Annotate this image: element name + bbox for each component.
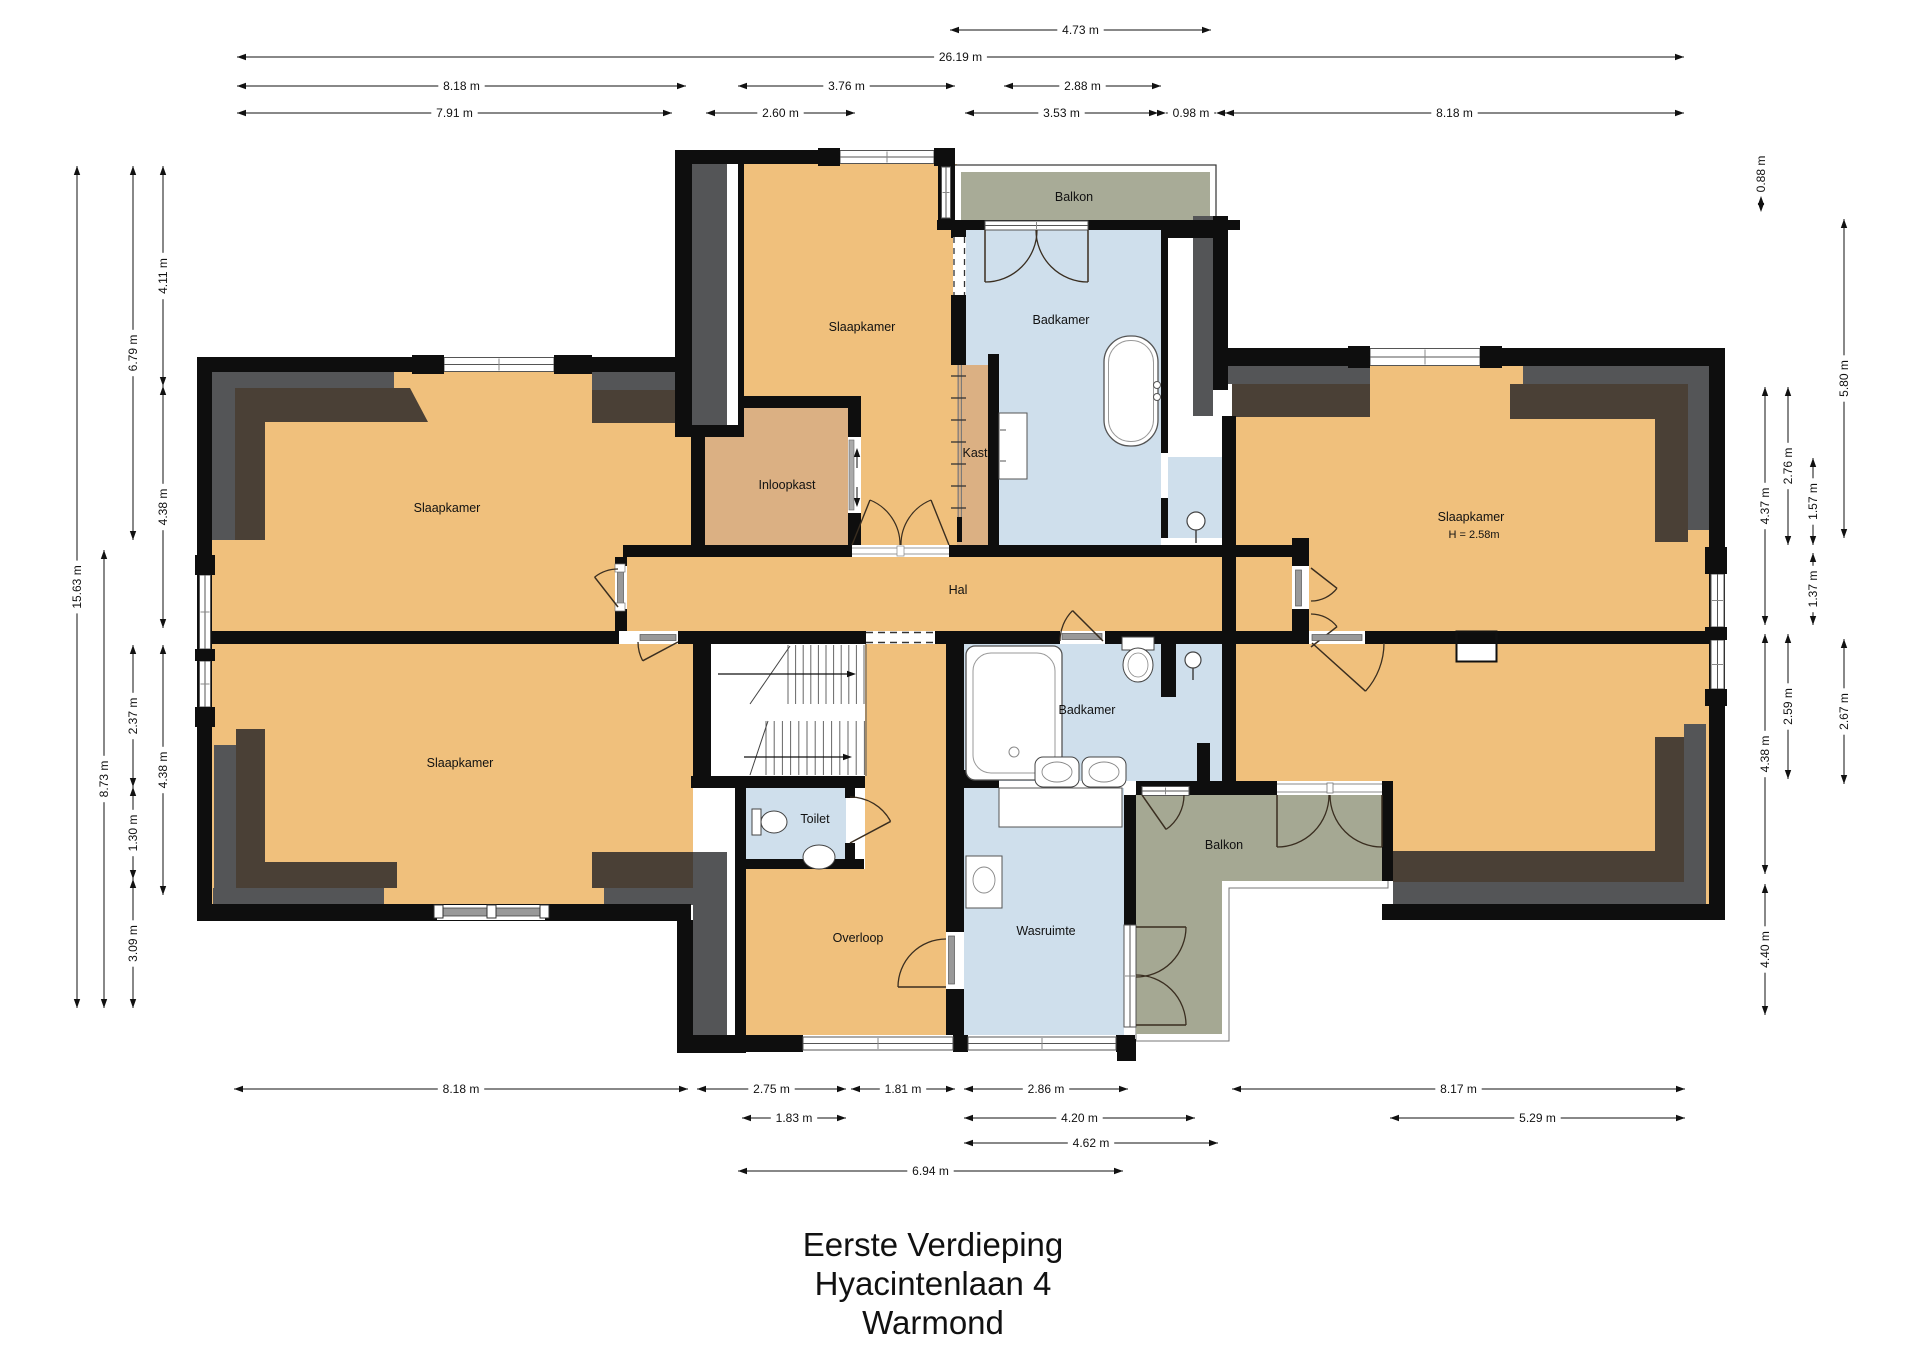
- svg-text:1.81 m: 1.81 m: [885, 1082, 922, 1096]
- svg-text:2.88 m: 2.88 m: [1064, 79, 1101, 93]
- svg-text:4.62 m: 4.62 m: [1073, 1136, 1110, 1150]
- svg-text:0.88 m: 0.88 m: [1754, 156, 1768, 193]
- svg-text:2.76 m: 2.76 m: [1781, 448, 1795, 485]
- svg-text:4.38 m: 4.38 m: [156, 489, 170, 526]
- svg-text:Warmond: Warmond: [862, 1304, 1004, 1341]
- svg-text:4.20 m: 4.20 m: [1061, 1111, 1098, 1125]
- svg-text:3.09 m: 3.09 m: [126, 925, 140, 962]
- svg-text:4.11 m: 4.11 m: [156, 258, 170, 294]
- svg-text:Slaapkamer: Slaapkamer: [829, 320, 896, 334]
- svg-text:Balkon: Balkon: [1055, 190, 1093, 204]
- svg-text:8.18 m: 8.18 m: [1436, 106, 1473, 120]
- svg-text:H = 2.58m: H = 2.58m: [1448, 529, 1499, 541]
- svg-text:Kast: Kast: [962, 446, 988, 460]
- svg-text:2.60 m: 2.60 m: [762, 106, 799, 120]
- svg-text:Eerste Verdieping: Eerste Verdieping: [803, 1226, 1064, 1263]
- svg-text:26.19 m: 26.19 m: [939, 50, 982, 64]
- svg-text:2.67 m: 2.67 m: [1837, 693, 1851, 730]
- svg-text:Balkon: Balkon: [1205, 838, 1243, 852]
- svg-text:Badkamer: Badkamer: [1059, 703, 1116, 717]
- svg-text:8.18 m: 8.18 m: [443, 79, 480, 93]
- svg-text:4.38 m: 4.38 m: [156, 752, 170, 789]
- svg-text:1.83 m: 1.83 m: [776, 1111, 813, 1125]
- svg-text:5.29 m: 5.29 m: [1519, 1111, 1556, 1125]
- svg-text:Overloop: Overloop: [833, 931, 884, 945]
- svg-text:1.57 m: 1.57 m: [1806, 483, 1820, 520]
- svg-text:1.37 m: 1.37 m: [1806, 571, 1820, 608]
- svg-text:8.73 m: 8.73 m: [97, 761, 111, 798]
- svg-text:3.76 m: 3.76 m: [828, 79, 865, 93]
- svg-text:15.63 m: 15.63 m: [70, 565, 84, 608]
- svg-text:0.98 m: 0.98 m: [1173, 106, 1210, 120]
- svg-text:Slaapkamer: Slaapkamer: [414, 501, 481, 515]
- svg-text:6.79 m: 6.79 m: [126, 335, 140, 372]
- svg-text:2.59 m: 2.59 m: [1781, 688, 1795, 725]
- svg-text:4.38 m: 4.38 m: [1758, 736, 1772, 773]
- svg-text:7.91 m: 7.91 m: [436, 106, 473, 120]
- svg-text:2.37 m: 2.37 m: [126, 698, 140, 735]
- svg-text:1.30 m: 1.30 m: [126, 815, 140, 852]
- svg-text:8.17 m: 8.17 m: [1440, 1082, 1477, 1096]
- svg-text:2.75 m: 2.75 m: [753, 1082, 790, 1096]
- svg-text:Toilet: Toilet: [800, 812, 830, 826]
- svg-text:Hyacintenlaan 4: Hyacintenlaan 4: [815, 1265, 1052, 1302]
- svg-text:5.80 m: 5.80 m: [1837, 360, 1851, 397]
- svg-text:Wasruimte: Wasruimte: [1016, 924, 1075, 938]
- svg-text:Hal: Hal: [949, 583, 968, 597]
- svg-text:Badkamer: Badkamer: [1033, 313, 1090, 327]
- svg-text:Slaapkamer: Slaapkamer: [427, 756, 494, 770]
- svg-text:4.37 m: 4.37 m: [1758, 488, 1772, 525]
- svg-text:2.86 m: 2.86 m: [1028, 1082, 1065, 1096]
- svg-text:6.94 m: 6.94 m: [912, 1164, 949, 1178]
- svg-text:4.40 m: 4.40 m: [1758, 931, 1772, 968]
- svg-text:Slaapkamer: Slaapkamer: [1438, 510, 1505, 524]
- svg-text:4.73 m: 4.73 m: [1062, 23, 1099, 37]
- svg-text:Inloopkast: Inloopkast: [759, 478, 817, 492]
- svg-text:3.53 m: 3.53 m: [1043, 106, 1080, 120]
- svg-text:8.18 m: 8.18 m: [443, 1082, 480, 1096]
